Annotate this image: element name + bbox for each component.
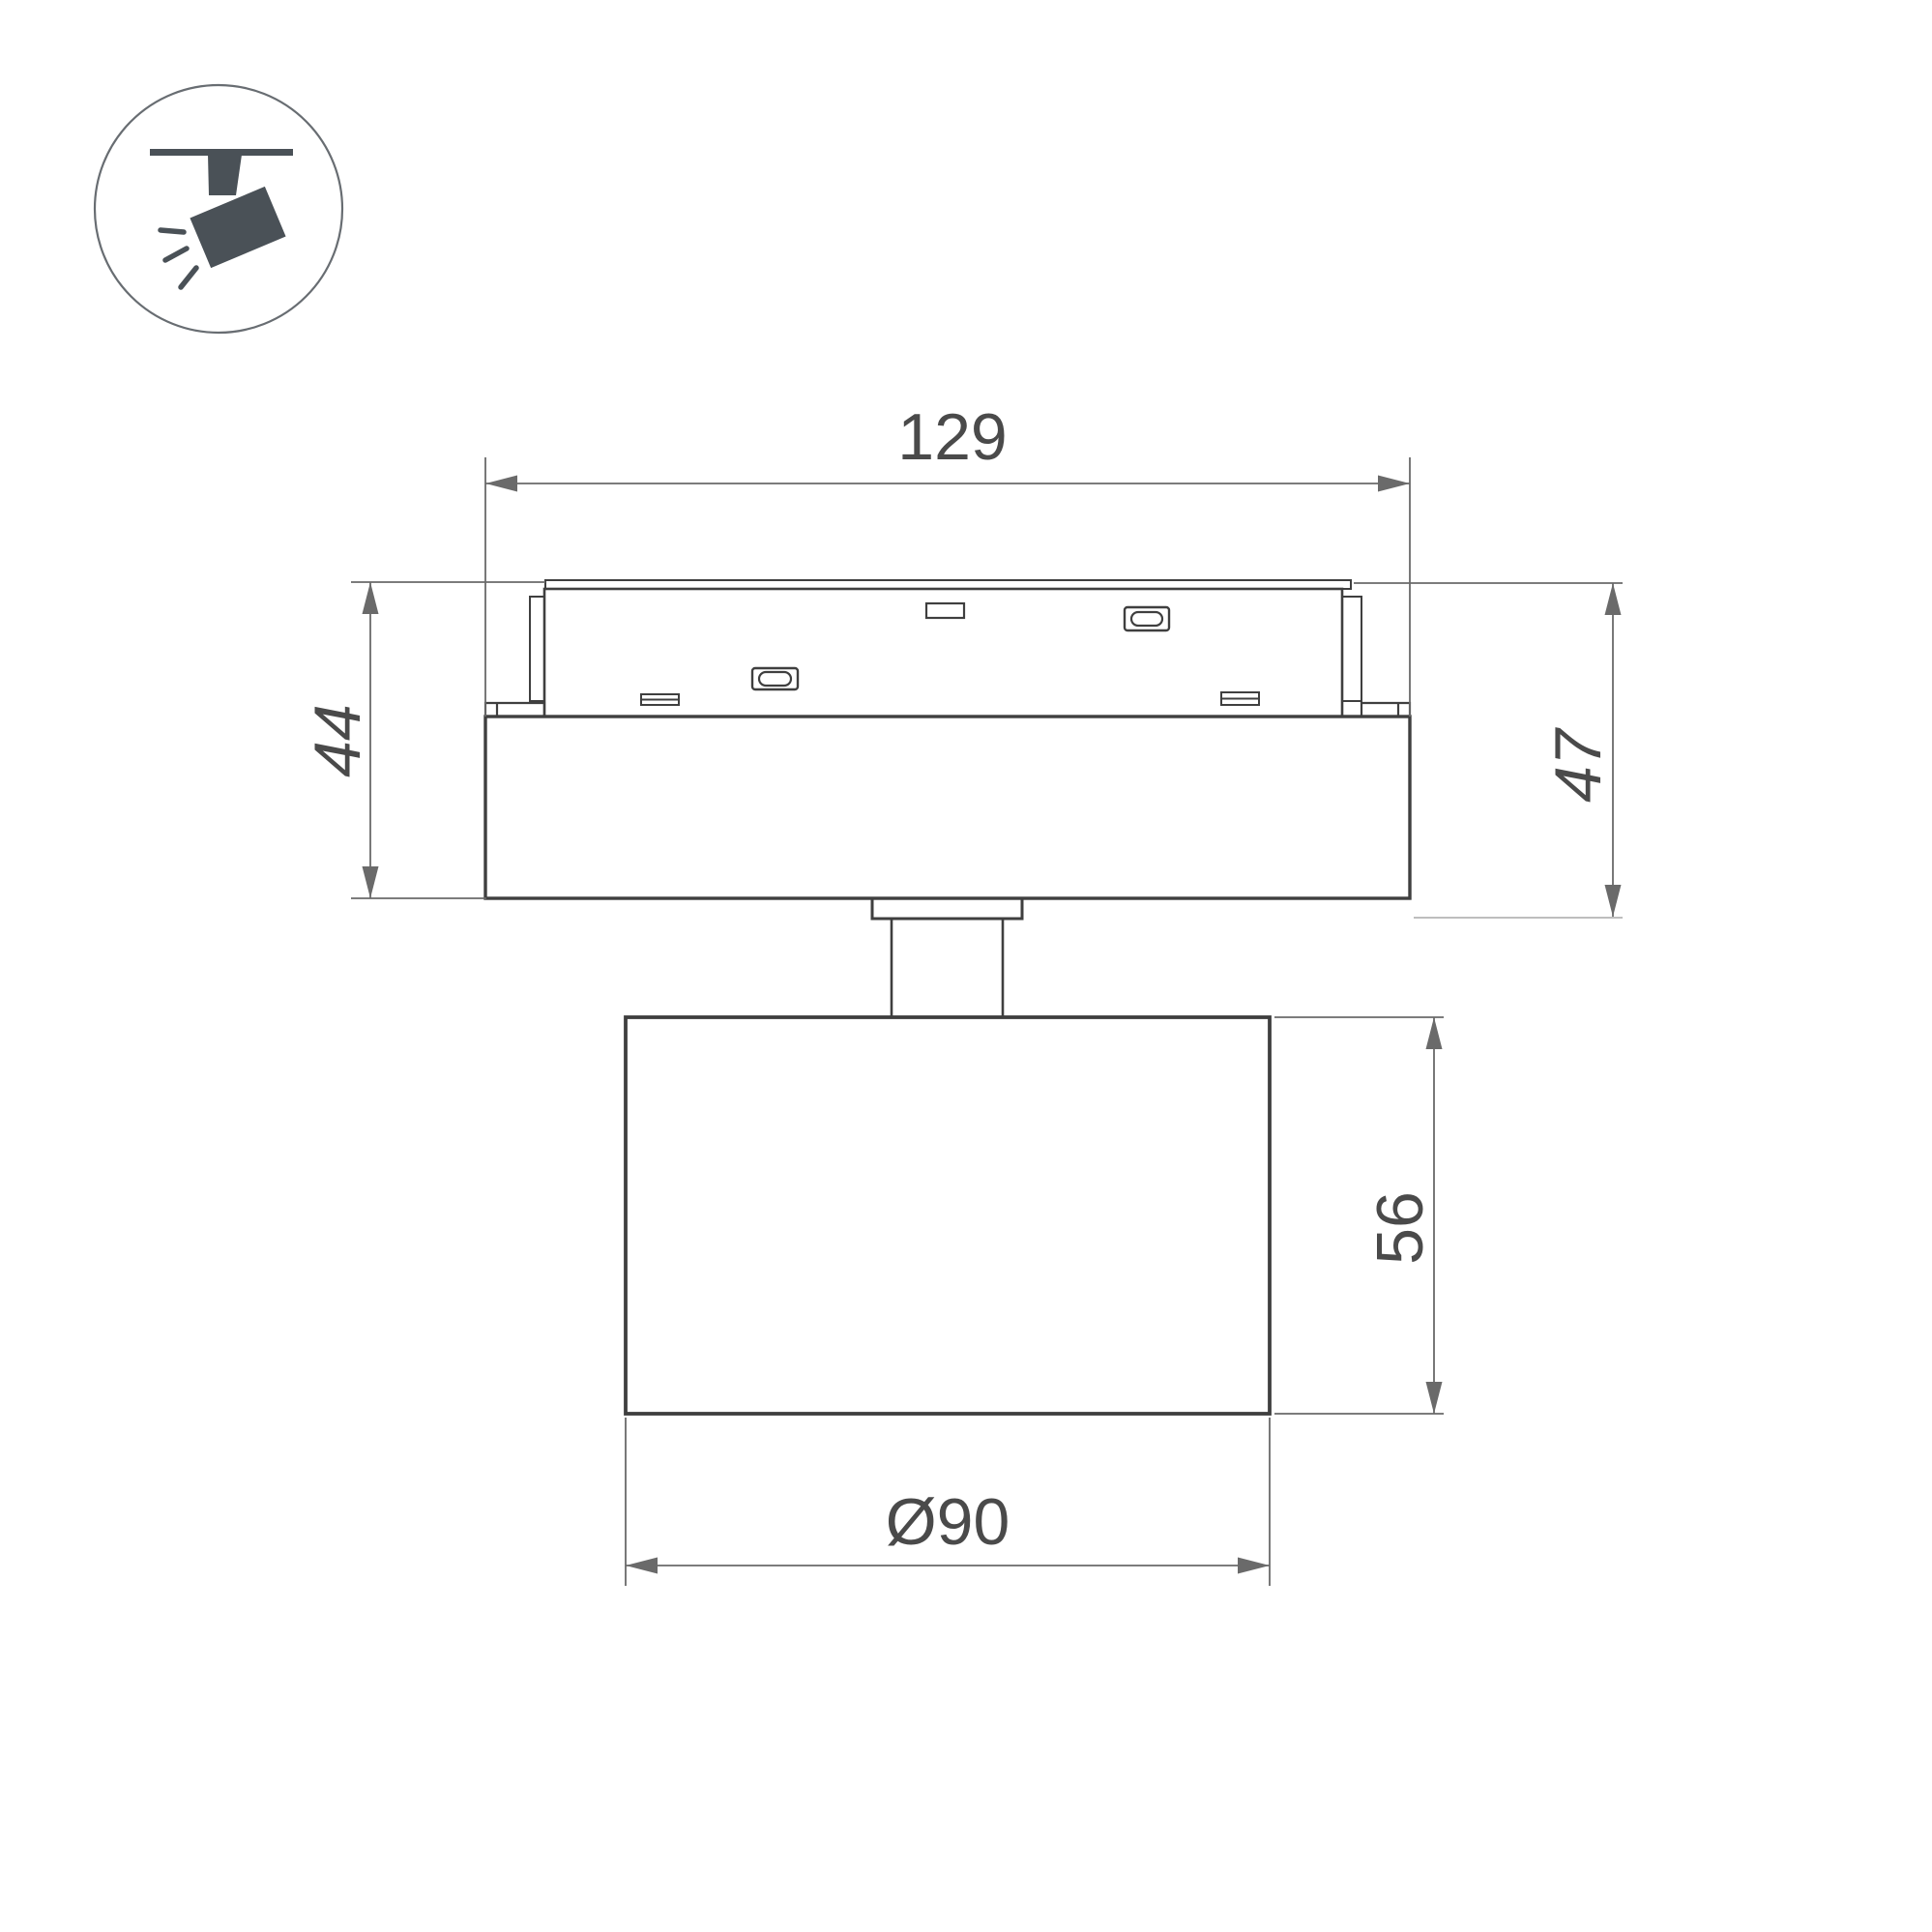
dim-track-width: 129 <box>485 400 1410 717</box>
dim-head-diameter: Ø90 <box>626 1418 1270 1586</box>
adapter-vent-slot-left <box>641 694 679 705</box>
adapter-button-right <box>1125 607 1169 630</box>
adapter-button-left <box>752 668 798 689</box>
adapter-body <box>544 589 1342 717</box>
technical-drawing: 129 44 47 56 <box>0 0 1932 1932</box>
track-adapter <box>530 580 1361 717</box>
corner-icon-badge <box>95 85 342 333</box>
arrowhead-right <box>1238 1558 1270 1574</box>
arrowhead-left <box>485 476 517 492</box>
light-ray-icon <box>181 268 196 287</box>
dim-adapter-height-right: 47 <box>1354 583 1623 918</box>
button-inner <box>759 672 791 686</box>
arrowhead-up <box>1605 583 1622 615</box>
track-spotlight-icon <box>150 149 293 268</box>
joint-collar <box>872 898 1022 919</box>
arrowhead-up <box>363 582 379 614</box>
base-lip-right <box>1361 703 1410 717</box>
icon-track-bar <box>150 149 293 156</box>
adapter-clip-right <box>1342 597 1361 701</box>
base-lip-left <box>485 703 544 717</box>
icon-light-rays <box>161 230 196 287</box>
arrowhead-left <box>626 1558 658 1574</box>
dim-label-adapter-height-left: 44 <box>301 704 374 777</box>
dim-adapter-height-left: 44 <box>301 582 545 898</box>
arrowhead-down <box>1426 1382 1443 1414</box>
adapter-slot <box>926 603 964 618</box>
arrowhead-down <box>363 866 379 898</box>
icon-head <box>190 187 285 268</box>
dim-label-adapter-height-right: 47 <box>1541 727 1615 803</box>
fixture-drawing <box>485 580 1410 1414</box>
dim-label-head-diameter: Ø90 <box>886 1485 1010 1559</box>
drawing-canvas: 129 44 47 56 <box>0 0 1932 1932</box>
mounting-base <box>485 703 1410 898</box>
arrowhead-down <box>1605 885 1622 917</box>
arrowhead-right <box>1378 476 1410 492</box>
adapter-vent-slot-right <box>1221 692 1259 705</box>
icon-stem <box>208 155 242 195</box>
arrowhead-up <box>1426 1017 1443 1049</box>
light-ray-icon <box>165 249 187 260</box>
dimension-annotations: 129 44 47 56 <box>301 400 1623 1586</box>
dim-label-head-height: 56 <box>1363 1191 1437 1265</box>
light-ray-icon <box>161 230 184 232</box>
adapter-clip-left <box>530 597 544 701</box>
button-inner <box>1131 612 1162 626</box>
swivel-joint <box>872 898 1022 1017</box>
adapter-top-strip <box>545 580 1351 589</box>
dim-head-height: 56 <box>1274 1017 1444 1414</box>
spot-head <box>626 1017 1270 1414</box>
base-plate <box>485 717 1410 898</box>
dim-label-track-width: 129 <box>897 400 1007 474</box>
